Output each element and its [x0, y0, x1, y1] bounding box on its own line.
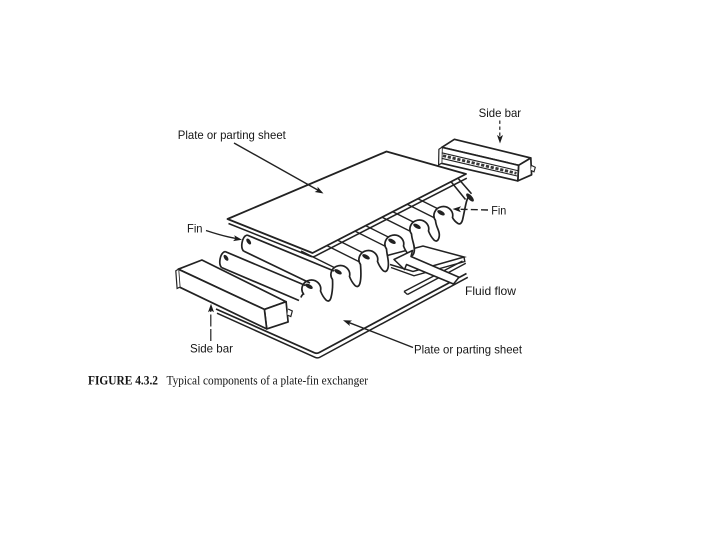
svg-text:Fin: Fin [187, 221, 203, 235]
svg-text:Plate or parting sheet: Plate or parting sheet [414, 343, 523, 357]
svg-text:Fin: Fin [491, 203, 506, 217]
svg-text:Side bar: Side bar [479, 106, 521, 120]
svg-text:Side bar: Side bar [190, 341, 233, 355]
svg-text:Plate or parting sheet: Plate or parting sheet [178, 128, 287, 142]
svg-text:Typical components of a plate-: Typical components of a plate-fin exchan… [167, 373, 369, 387]
svg-text:FIGURE 4.3.2: FIGURE 4.3.2 [88, 372, 158, 387]
svg-text:Fluid flow: Fluid flow [465, 284, 516, 298]
